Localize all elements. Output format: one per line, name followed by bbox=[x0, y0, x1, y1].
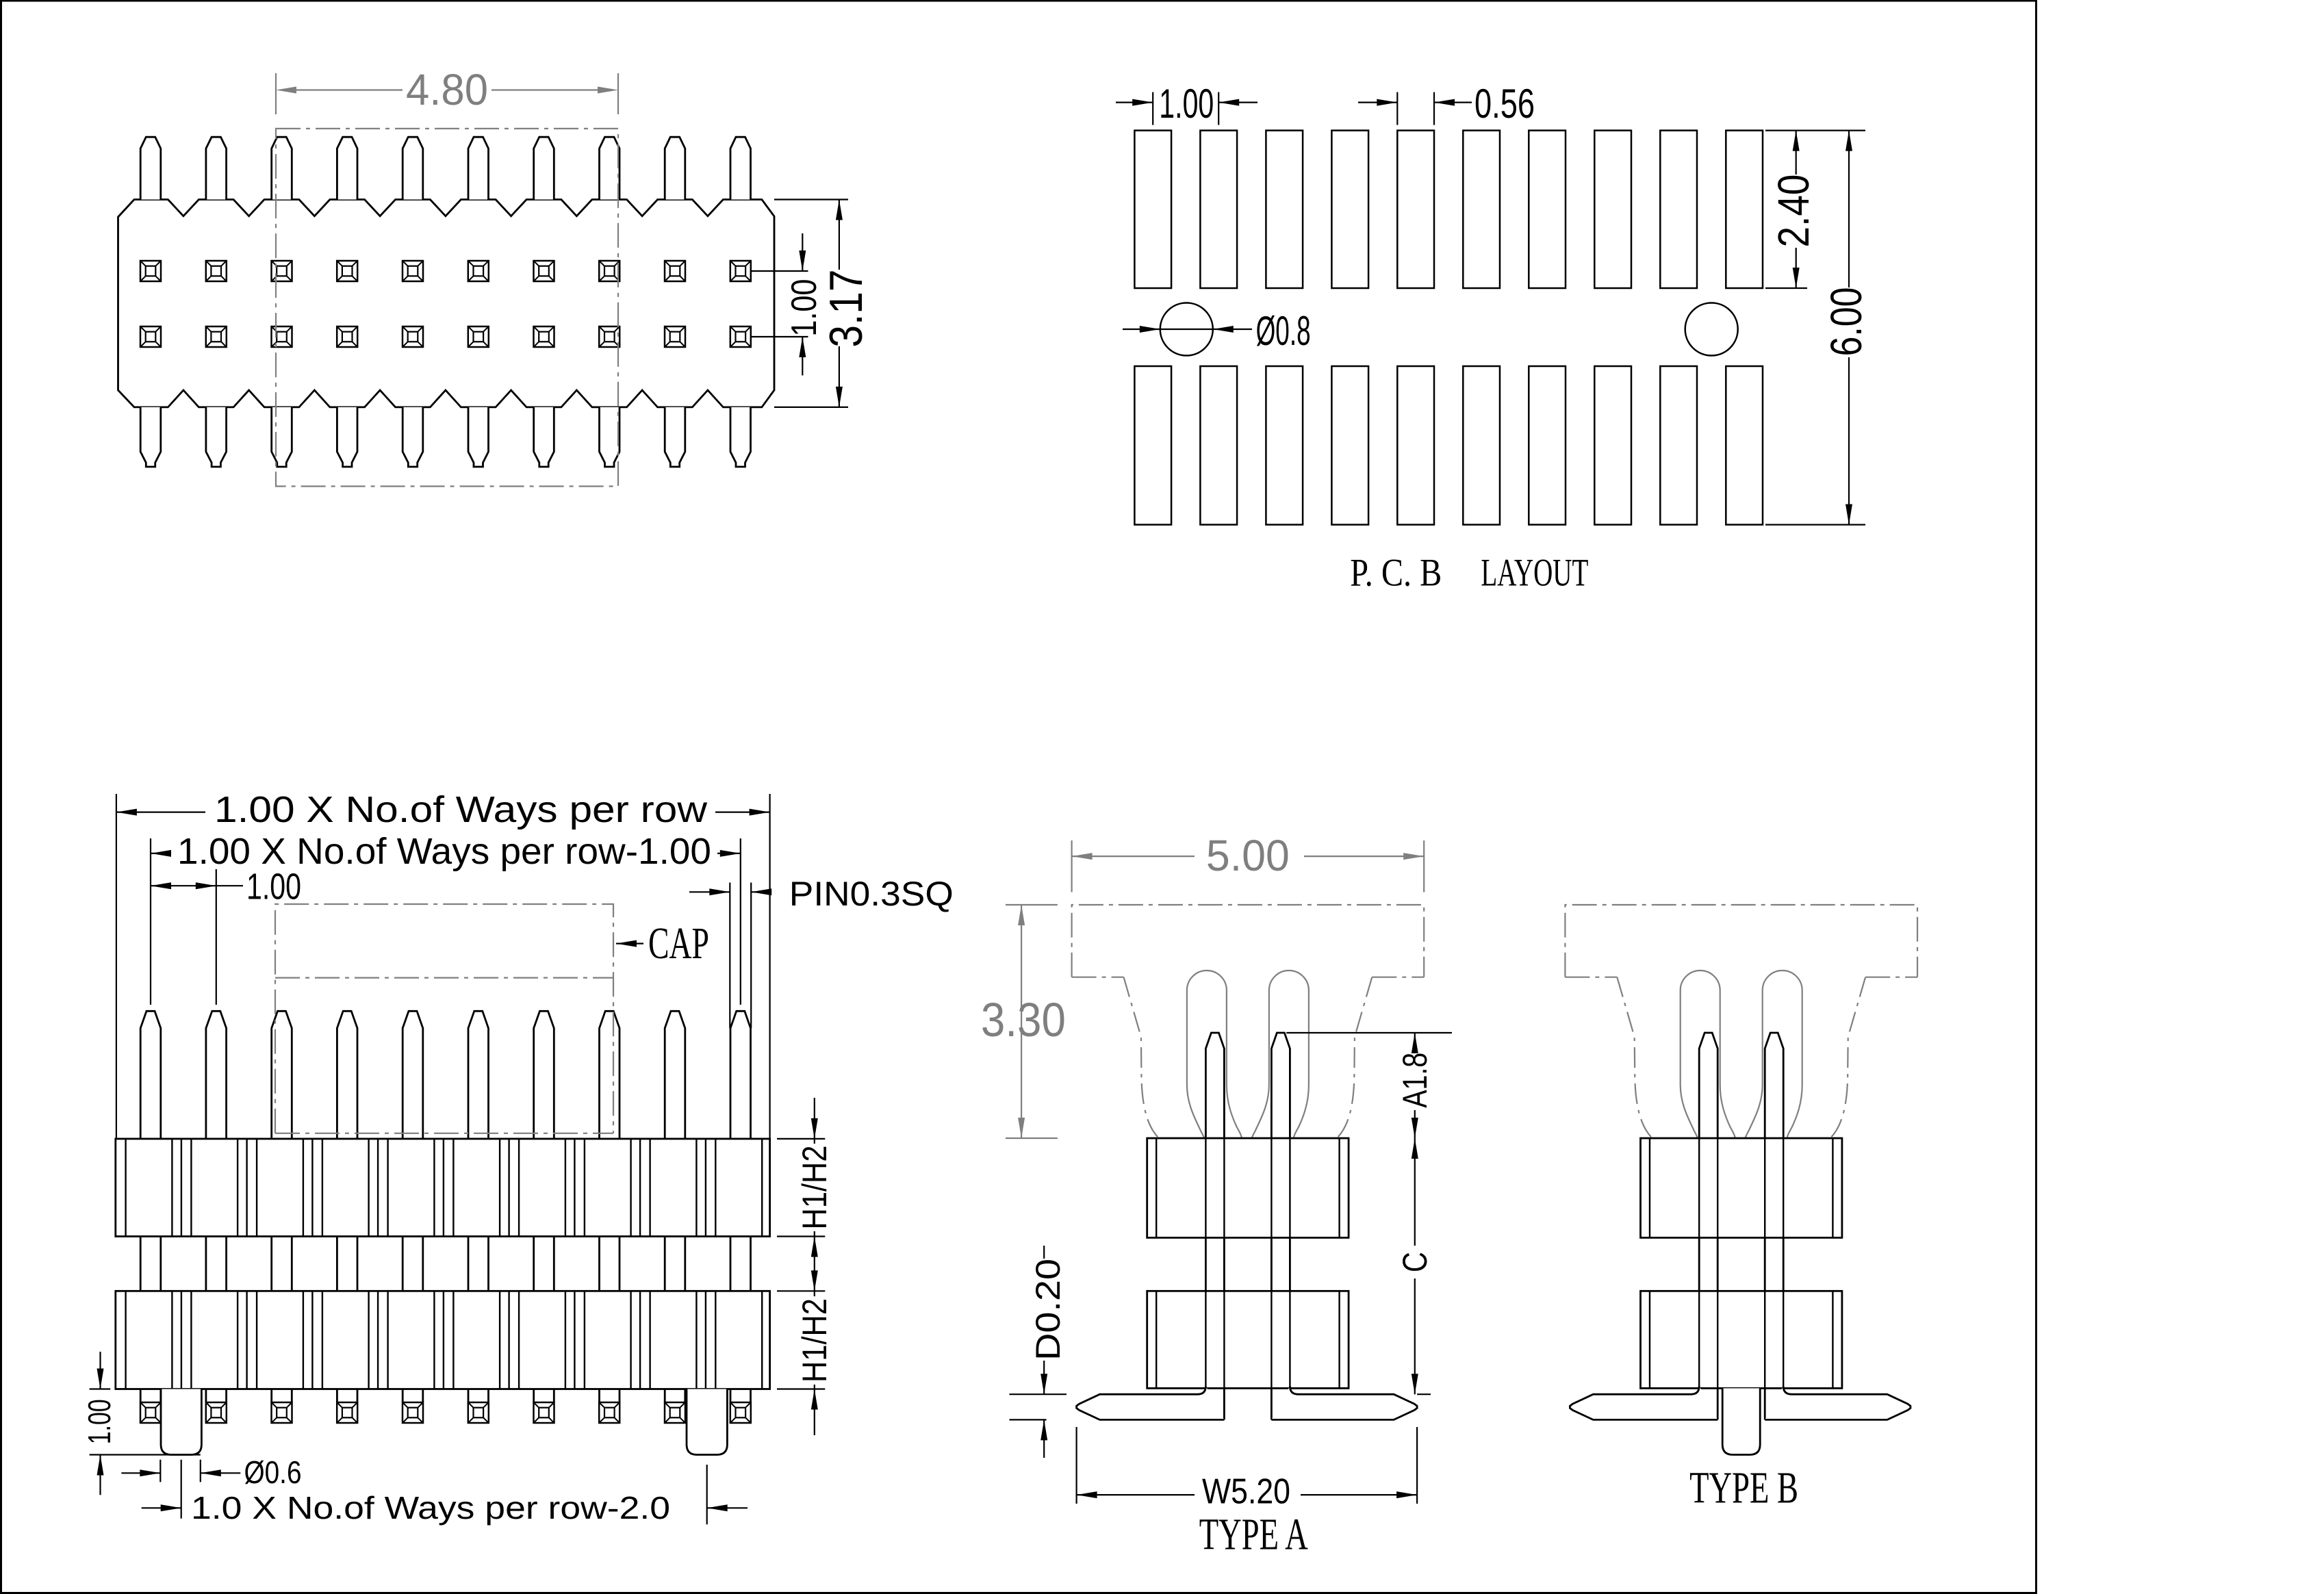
svg-text:0.56: 0.56 bbox=[1474, 81, 1535, 127]
svg-text:H1/H2: H1/H2 bbox=[795, 1146, 834, 1230]
svg-text:LAYOUT: LAYOUT bbox=[1481, 552, 1588, 595]
svg-text:A1.8: A1.8 bbox=[1396, 1053, 1434, 1108]
svg-text:1.00: 1.00 bbox=[1159, 81, 1214, 127]
svg-text:H1/H2: H1/H2 bbox=[795, 1298, 834, 1383]
svg-text:TYPE B: TYPE B bbox=[1689, 1463, 1798, 1513]
svg-text:1.00: 1.00 bbox=[784, 279, 824, 337]
svg-text:Ø0.6: Ø0.6 bbox=[244, 1454, 302, 1490]
svg-text:1.00: 1.00 bbox=[81, 1399, 117, 1444]
svg-text:3.30: 3.30 bbox=[981, 993, 1066, 1046]
svg-text:Ø0.8: Ø0.8 bbox=[1256, 308, 1311, 354]
svg-text:C: C bbox=[1396, 1252, 1434, 1272]
svg-text:1.00: 1.00 bbox=[246, 866, 301, 908]
svg-text:CAP: CAP bbox=[648, 918, 709, 968]
svg-text:PIN0.3SQ: PIN0.3SQ bbox=[789, 875, 954, 913]
svg-text:2.40: 2.40 bbox=[1769, 175, 1818, 248]
svg-text:6.00: 6.00 bbox=[1822, 287, 1871, 357]
svg-text:4.80: 4.80 bbox=[406, 65, 488, 114]
svg-text:P. C. B: P. C. B bbox=[1350, 552, 1442, 595]
svg-text:1.00 X No.of Ways per row: 1.00 X No.of Ways per row bbox=[214, 789, 708, 830]
svg-text:3.17: 3.17 bbox=[820, 270, 872, 348]
svg-text:W5.20: W5.20 bbox=[1202, 1471, 1290, 1511]
svg-text:5.00: 5.00 bbox=[1206, 831, 1290, 880]
svg-text:1.0 X No.of Ways per row-2.0: 1.0 X No.of Ways per row-2.0 bbox=[191, 1490, 670, 1526]
svg-text:TYPE A: TYPE A bbox=[1199, 1510, 1308, 1560]
svg-text:D0.20: D0.20 bbox=[1029, 1259, 1067, 1361]
